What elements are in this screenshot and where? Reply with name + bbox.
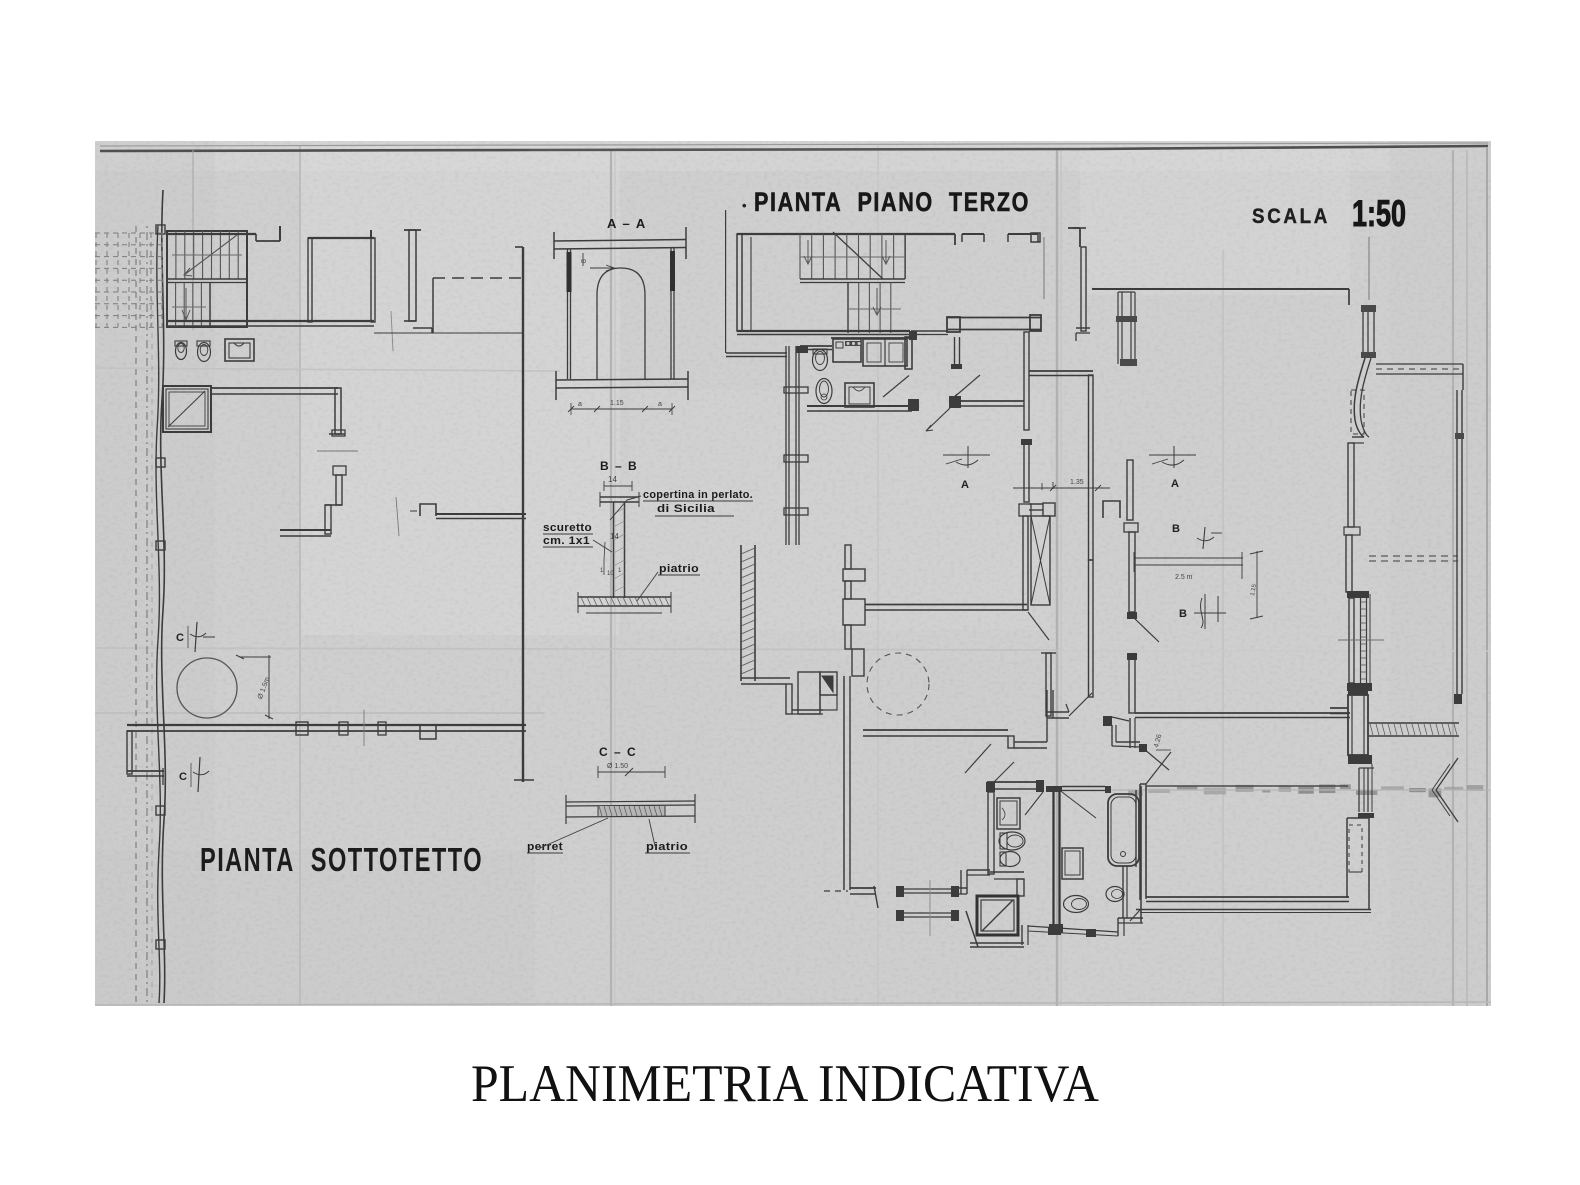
svg-text:1.35: 1.35: [1070, 479, 1084, 486]
svg-text:2.5 m: 2.5 m: [1175, 574, 1193, 581]
svg-text:di Sicilia: di Sicilia: [657, 503, 716, 515]
svg-text:cm. 1x1: cm. 1x1: [543, 535, 590, 547]
svg-text:piatrio: piatrio: [646, 841, 688, 853]
svg-text:C: C: [176, 632, 184, 644]
svg-text:B: B: [1172, 523, 1180, 535]
svg-text:copertina in perlato.: copertina in perlato.: [643, 489, 753, 501]
svg-text:C: C: [179, 771, 187, 783]
svg-text:•: •: [742, 198, 747, 213]
svg-text:PIANTA SOTTOTETTO: PIANTA SOTTOTETTO: [200, 841, 483, 878]
svg-text:piatrio: piatrio: [659, 563, 699, 575]
svg-text:8: 8: [581, 259, 588, 263]
svg-text:SCALA: SCALA: [1252, 205, 1330, 228]
svg-text:14: 14: [608, 475, 617, 484]
svg-text:A: A: [961, 479, 969, 491]
svg-text:10: 10: [607, 571, 614, 577]
svg-text:PLANIMETRIA INDICATIVA: PLANIMETRIA INDICATIVA: [471, 1055, 1099, 1113]
svg-text:1.15: 1.15: [610, 400, 624, 407]
svg-text:C – C: C – C: [599, 745, 637, 759]
svg-text:a: a: [578, 401, 582, 408]
svg-text:A: A: [1171, 478, 1179, 490]
svg-text:perret: perret: [527, 841, 563, 853]
svg-text:B – B: B – B: [600, 459, 638, 473]
svg-text:1:50: 1:50: [1352, 193, 1406, 234]
svg-text:A – A: A – A: [607, 216, 647, 231]
svg-text:B: B: [1179, 608, 1187, 620]
svg-text:Ø 1.50: Ø 1.50: [607, 763, 628, 770]
svg-text:a: a: [658, 401, 662, 408]
svg-text:PIANTA PIANO TERZO: PIANTA PIANO TERZO: [754, 187, 1030, 217]
svg-text:scuretto: scuretto: [543, 522, 592, 534]
svg-text:14: 14: [610, 532, 619, 541]
